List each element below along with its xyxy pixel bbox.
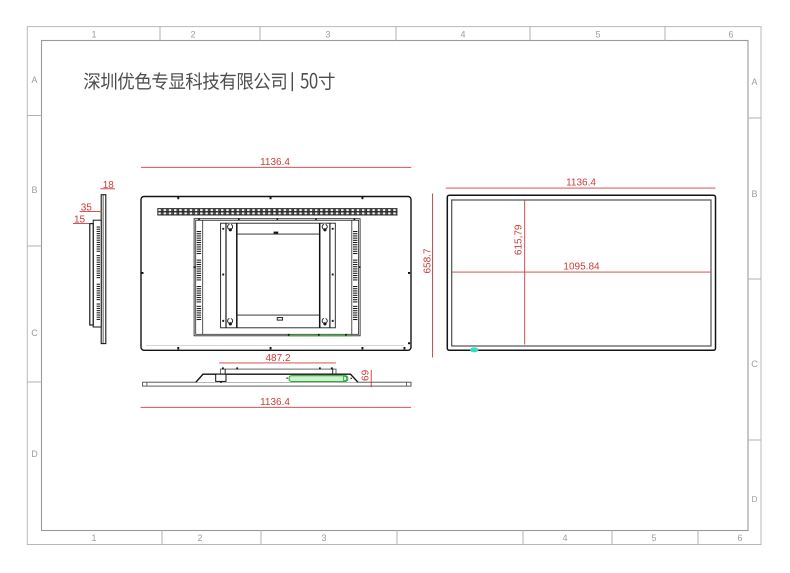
svg-text:1136.4: 1136.4 xyxy=(566,178,596,189)
svg-text:D: D xyxy=(752,495,758,504)
svg-text:A: A xyxy=(751,77,757,87)
svg-text:1136.4: 1136.4 xyxy=(260,397,290,408)
svg-text:487.2: 487.2 xyxy=(265,353,290,364)
svg-text:C: C xyxy=(751,359,758,369)
svg-text:3: 3 xyxy=(321,533,326,543)
svg-text:6: 6 xyxy=(737,533,742,543)
svg-text:1136.4: 1136.4 xyxy=(260,157,290,168)
svg-text:C: C xyxy=(31,328,38,338)
svg-text:2: 2 xyxy=(197,533,202,543)
svg-text:18: 18 xyxy=(103,180,115,191)
svg-text:D: D xyxy=(31,449,38,459)
svg-text:5: 5 xyxy=(651,533,656,543)
svg-text:658.7: 658.7 xyxy=(422,248,433,273)
svg-text:4: 4 xyxy=(460,30,465,40)
svg-text:1095.84: 1095.84 xyxy=(563,262,600,273)
svg-text:1: 1 xyxy=(91,533,96,543)
svg-text:5: 5 xyxy=(595,30,600,40)
svg-text:1: 1 xyxy=(91,30,96,40)
svg-text:615,79: 615,79 xyxy=(514,224,525,255)
svg-text:2: 2 xyxy=(190,30,195,40)
svg-text:4: 4 xyxy=(562,533,567,543)
svg-text:69: 69 xyxy=(361,369,372,381)
svg-text:B: B xyxy=(751,189,757,199)
svg-text:3: 3 xyxy=(325,30,330,40)
svg-text:6: 6 xyxy=(728,30,733,40)
svg-text:A: A xyxy=(31,75,37,85)
svg-text:B: B xyxy=(31,185,37,195)
